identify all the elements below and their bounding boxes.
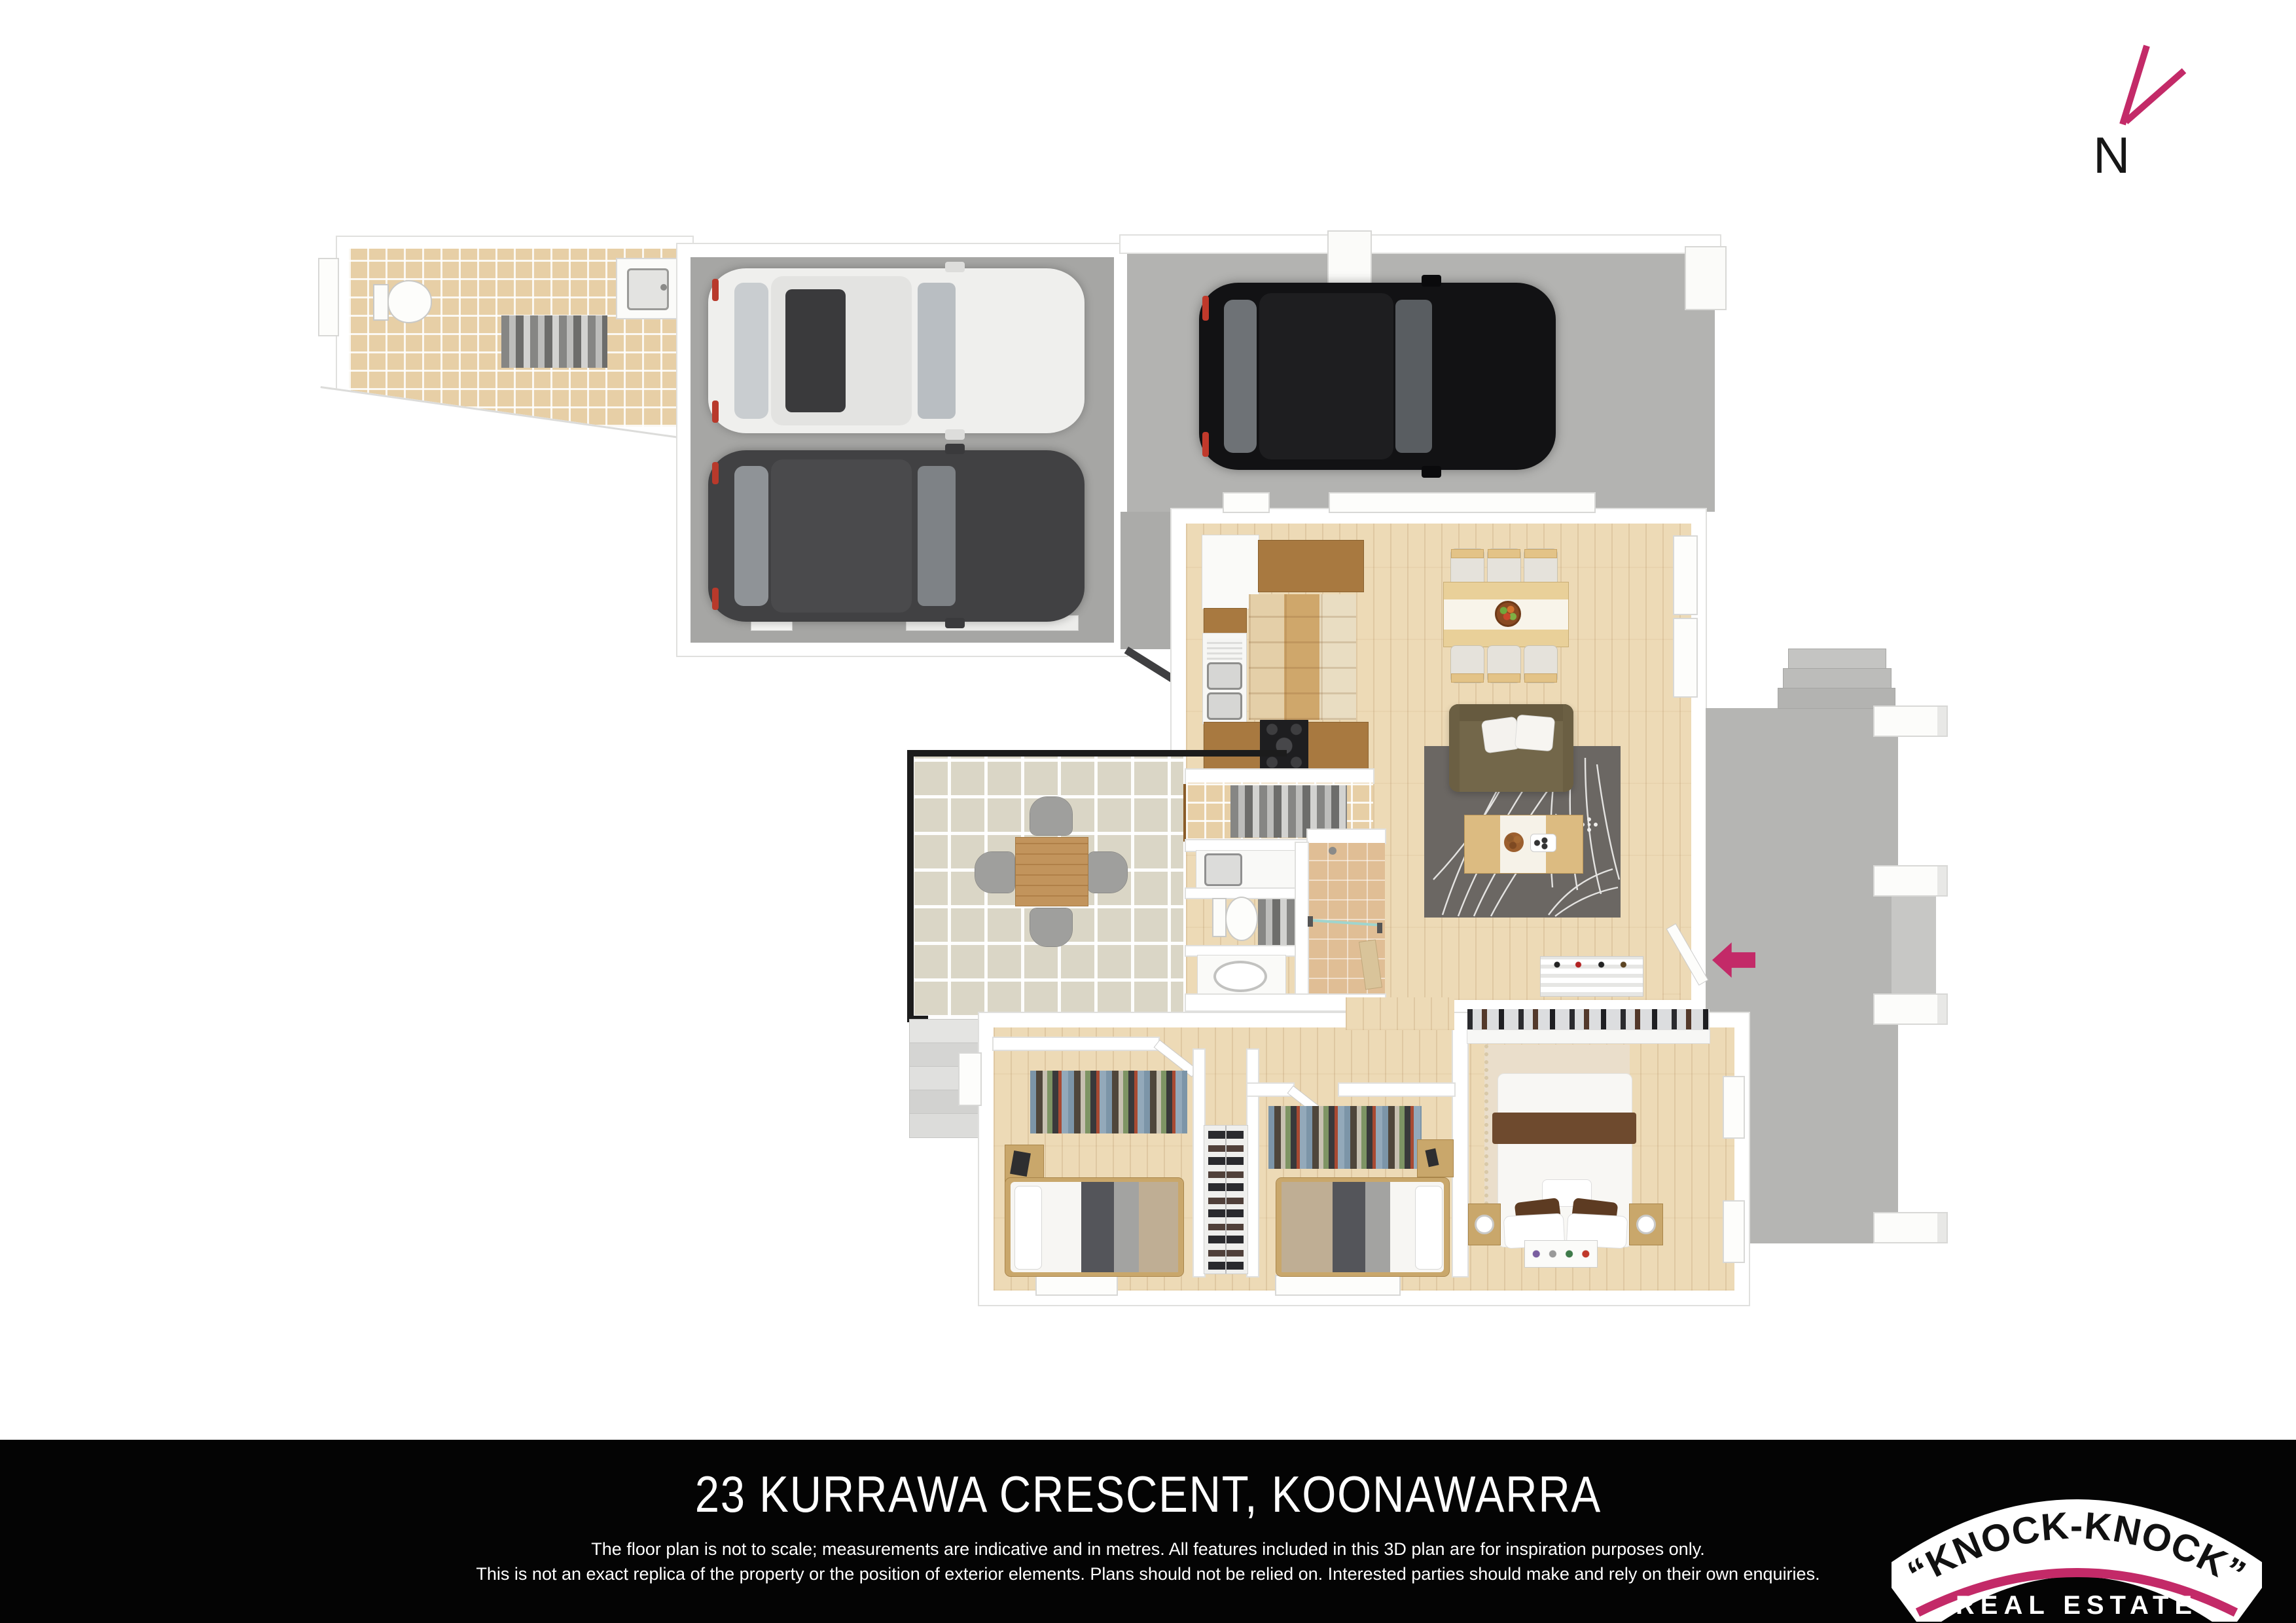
- kitchen-sink: [1207, 692, 1242, 720]
- dining-chair: [1524, 548, 1558, 588]
- phone: [1425, 1149, 1439, 1168]
- bed-band-tan: [1282, 1182, 1333, 1272]
- cluster-wall: [1186, 946, 1308, 955]
- master-dresser: [1525, 1241, 1597, 1267]
- hall-wall: [994, 1038, 1158, 1050]
- bed-pillow: [1014, 1186, 1042, 1270]
- toilet-tank: [1213, 899, 1225, 936]
- laundry-top-wall: [1186, 770, 1373, 783]
- kitchen-bench-top: [1259, 541, 1363, 592]
- patio-chair: [1030, 908, 1072, 946]
- toilet-bowl: [387, 280, 432, 323]
- car-mirror: [1422, 466, 1441, 478]
- step: [910, 1020, 982, 1043]
- decor-flowers: [1504, 832, 1524, 852]
- dining-chair: [1487, 645, 1521, 683]
- vanity-basin: [1213, 961, 1267, 992]
- closet-wall: [1194, 1050, 1204, 1276]
- patio-chair: [1030, 797, 1072, 835]
- dining-chair: [1524, 645, 1558, 683]
- step: [1778, 688, 1895, 708]
- floor-plan: [0, 0, 2296, 1440]
- entry-console: [1541, 957, 1643, 996]
- step: [910, 1114, 982, 1137]
- wc-basin-counter: [1196, 851, 1296, 889]
- bed-pillow: [1415, 1186, 1443, 1270]
- patio-chair: [975, 852, 1014, 893]
- car-windshield: [1395, 300, 1432, 453]
- deck-rail-post: [1874, 707, 1946, 736]
- bedroom2-window-sill: [960, 1054, 980, 1105]
- storeroom-toilet: [374, 277, 432, 323]
- dresser-items: [1532, 1250, 1590, 1258]
- patio-table: [1016, 838, 1088, 906]
- sofa-arm: [1563, 704, 1573, 792]
- car-mirror: [945, 262, 965, 272]
- bedroom3-top-wall: [1247, 1084, 1293, 1096]
- kitchen-mat: [1249, 594, 1356, 720]
- master-window-sill: [1724, 1077, 1744, 1137]
- sink-drainer: [1207, 639, 1242, 660]
- deck-lower-landing: [1892, 891, 1936, 1000]
- master-bed-throw: [1492, 1113, 1636, 1144]
- sofa: [1449, 704, 1573, 792]
- bed-band-dark: [1081, 1182, 1114, 1272]
- storeroom-window: [319, 259, 338, 335]
- living-right-window-sill: [1674, 619, 1696, 696]
- master-wardrobe-clothes: [1467, 1009, 1710, 1032]
- wc-rug: [1258, 899, 1296, 946]
- master-nightstand: [1469, 1204, 1500, 1245]
- black-car: [1199, 283, 1556, 470]
- pergola-beam-top: [907, 750, 1287, 757]
- bedroom2-rug: [1030, 1071, 1187, 1133]
- car-rear-glass: [734, 466, 768, 606]
- patio-chair: [1088, 852, 1127, 893]
- step: [1784, 669, 1891, 688]
- coffee-table: [1465, 815, 1583, 873]
- carport-post: [1686, 247, 1725, 309]
- step: [1789, 649, 1886, 669]
- sofa-arm: [1449, 704, 1460, 792]
- hall-passage-patch: [1346, 997, 1454, 1030]
- master-wardrobe-shelf: [1467, 1030, 1710, 1043]
- master-nightstand: [1630, 1204, 1662, 1245]
- laptop: [1010, 1150, 1031, 1177]
- car-sunroof: [785, 289, 846, 412]
- shower-head: [1329, 847, 1336, 855]
- car-windshield: [918, 466, 956, 606]
- car-taillight: [712, 588, 719, 610]
- car-mirror: [1422, 275, 1441, 287]
- pergola-beam-left: [907, 750, 914, 1021]
- fruit-bowl: [1495, 601, 1521, 627]
- car-mirror: [945, 444, 965, 454]
- kitchen-bench-strip: [1204, 609, 1246, 635]
- shower-handle: [1308, 916, 1313, 927]
- cluster-wall: [1186, 840, 1308, 851]
- bedroom3-nightstand: [1418, 1140, 1453, 1177]
- living-top-window-sill: [1330, 493, 1594, 512]
- car-windshield: [918, 283, 956, 419]
- car-taillight: [712, 462, 719, 484]
- toilet-bowl: [1225, 897, 1258, 941]
- deck-rail-post: [1874, 995, 1946, 1024]
- bedroom3-top-wall: [1339, 1084, 1454, 1096]
- dining-chair: [1487, 548, 1521, 588]
- logo-subtitle: REAL ESTATE: [1956, 1591, 2198, 1620]
- car-roof: [771, 459, 912, 613]
- dining-table: [1444, 582, 1568, 647]
- wc-toilet: [1213, 897, 1257, 938]
- toilet-tank: [374, 285, 387, 319]
- lamp: [1475, 1215, 1494, 1234]
- decor-plate: [1530, 834, 1556, 852]
- side-door-open: [1124, 647, 1175, 683]
- bedroom2-bed: [1005, 1178, 1183, 1276]
- bedroom2-desk: [1005, 1145, 1043, 1182]
- living-right-window-sill: [1674, 537, 1696, 614]
- bed-band-grey: [1114, 1182, 1139, 1272]
- deck-rail-post: [1874, 866, 1946, 895]
- deck-steps: [1778, 649, 1895, 708]
- master-divider-wall: [1453, 1013, 1467, 1276]
- dining-chair: [1450, 548, 1484, 588]
- car-roof: [1259, 293, 1393, 459]
- car-taillight: [1202, 432, 1209, 457]
- shower-handle: [1377, 923, 1382, 933]
- bed-band-dark: [1333, 1182, 1365, 1272]
- deck-rail-post: [1874, 1213, 1946, 1242]
- car-taillight: [712, 279, 719, 301]
- car-taillight: [1202, 296, 1209, 321]
- kitchen-sink-bench: [1203, 633, 1246, 724]
- bed-band-grey: [1365, 1182, 1390, 1272]
- hall-closet: [1204, 1126, 1247, 1274]
- carport-top-wall: [1121, 236, 1720, 253]
- car-mirror: [945, 618, 965, 628]
- bed-band-tan: [1139, 1182, 1178, 1272]
- kitchen-sink: [1207, 662, 1242, 690]
- cluster-divider-wall: [1296, 843, 1308, 999]
- bedroom3-bed: [1276, 1178, 1449, 1276]
- bedroom3-rug: [1268, 1106, 1422, 1169]
- tub-tap: [660, 284, 667, 291]
- sofa-pillow: [1515, 715, 1555, 752]
- car-rear-glass: [1224, 300, 1257, 453]
- white-car: [708, 268, 1085, 433]
- dining-chair: [1450, 645, 1484, 683]
- master-window-sill: [1724, 1202, 1744, 1262]
- vanity: [1198, 955, 1285, 996]
- car-taillight: [712, 401, 719, 423]
- bathroom-top-wall: [1308, 830, 1385, 843]
- kitchen-window-sill: [1224, 493, 1268, 512]
- storeroom-laundry-tub: [617, 259, 680, 318]
- storeroom-rug: [501, 315, 607, 368]
- wc-basin: [1204, 853, 1242, 886]
- dark-grey-car: [708, 450, 1085, 622]
- closet-mirror-line: [1225, 1126, 1227, 1274]
- bedroom3-bottom-window-sill: [1276, 1276, 1399, 1294]
- agency-logo: “KNOCK-KNOCK” REAL ESTATE: [1892, 1465, 2262, 1622]
- lamp: [1636, 1215, 1656, 1234]
- shoes: [1549, 961, 1634, 969]
- sofa-pillow: [1481, 716, 1520, 753]
- property-address-text: 23 KURRAWA CRESCENT, KOONAWARRA: [694, 1465, 1601, 1524]
- car-rear-glass: [734, 283, 768, 419]
- bedroom2-bottom-window-sill: [1037, 1276, 1117, 1294]
- car-mirror: [945, 429, 965, 440]
- kitchen-cooktop: [1260, 717, 1308, 772]
